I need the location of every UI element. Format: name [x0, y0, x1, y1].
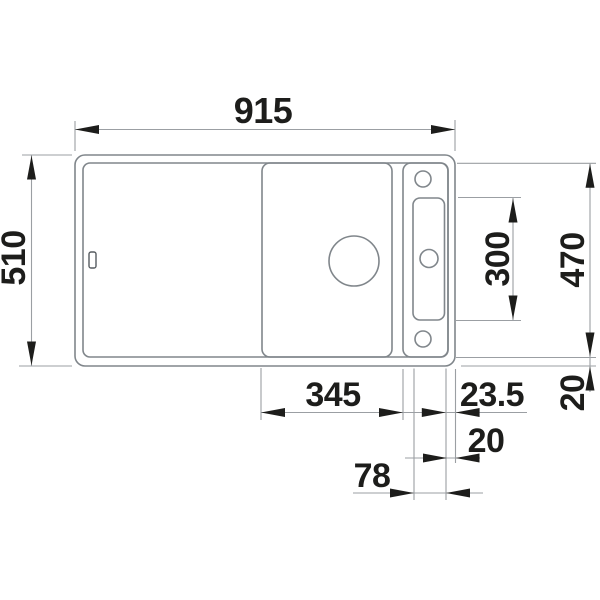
arrow-235-left — [422, 408, 446, 417]
label-slot-width: 78 — [354, 457, 391, 495]
sink-inner-flange — [83, 163, 448, 357]
label-overall-width: 915 — [234, 90, 293, 131]
arrow-depth-top — [27, 156, 36, 180]
label-rear-right-edge: 20 — [554, 375, 592, 412]
arrow-inner-depth-bottom — [586, 333, 595, 357]
arrow-345-right — [379, 408, 403, 417]
tap-hole-middle — [420, 250, 438, 268]
arrow-width-left — [75, 125, 99, 134]
accessory-section-outline — [403, 163, 448, 357]
tap-slot-outline — [413, 198, 445, 320]
dimension-arrows — [27, 125, 595, 498]
drawing-svg: 915 510 470 300 20 345 23.5 20 78 — [0, 0, 600, 600]
dimension-lines — [32, 130, 591, 494]
sink-outline-group — [75, 155, 455, 366]
sink-outer-outline — [75, 155, 455, 366]
label-inner-depth: 470 — [554, 232, 592, 287]
label-slot-height: 300 — [479, 231, 517, 286]
tap-hole-top — [415, 171, 431, 187]
tap-hole-bottom — [415, 331, 431, 347]
label-right-edge: 20 — [468, 422, 505, 460]
extension-lines — [19, 120, 596, 500]
arrow-width-right — [431, 125, 455, 134]
arrow-345-left — [261, 408, 285, 417]
label-slot-to-edge: 23.5 — [460, 376, 524, 414]
arrow-slot-height-bottom — [509, 296, 518, 320]
overflow-marking — [89, 252, 96, 268]
sink-technical-drawing: 915 510 470 300 20 345 23.5 20 78 — [0, 0, 600, 600]
label-board-section-width: 345 — [305, 376, 360, 414]
arrow-depth-bottom — [27, 342, 36, 366]
board-hole — [329, 236, 379, 286]
arrow-slot-height-top — [509, 199, 518, 223]
dimension-labels: 915 510 470 300 20 345 23.5 20 78 — [0, 90, 592, 495]
label-overall-depth: 510 — [0, 230, 33, 285]
arrow-inner-depth-top — [586, 164, 595, 188]
cutting-board-outline — [262, 163, 392, 357]
arrow-edge20-left — [423, 454, 447, 463]
arrow-78-right — [446, 489, 470, 498]
arrow-78-left — [390, 489, 414, 498]
